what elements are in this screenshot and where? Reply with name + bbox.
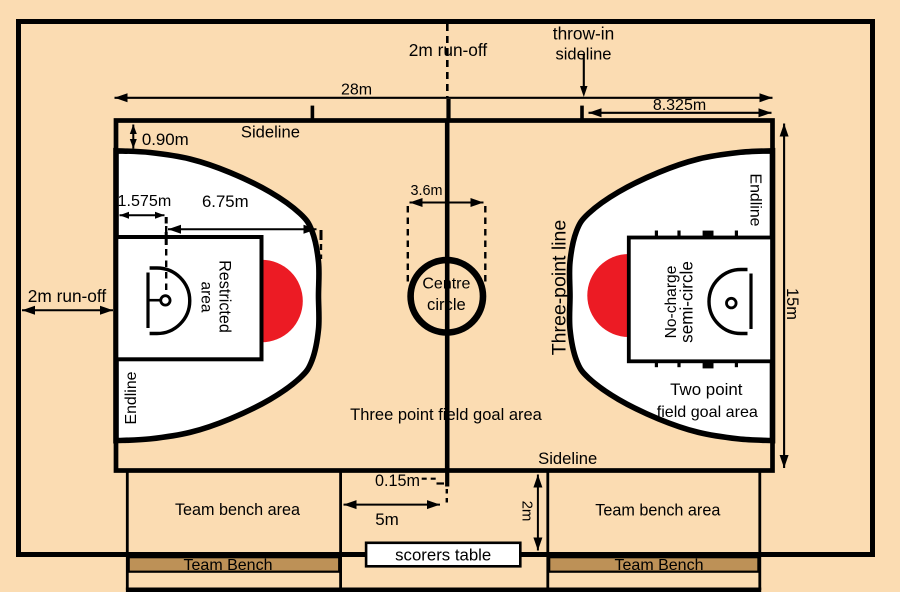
svg-text:area: area xyxy=(198,281,215,312)
svg-text:Sideline: Sideline xyxy=(241,123,300,142)
svg-text:field goal area: field goal area xyxy=(657,403,758,421)
svg-text:Endline: Endline xyxy=(123,371,140,424)
svg-text:scorers table: scorers table xyxy=(395,546,491,565)
svg-text:Two point: Two point xyxy=(670,380,743,399)
svg-text:0.15m: 0.15m xyxy=(375,472,420,490)
svg-text:6.75m: 6.75m xyxy=(202,192,249,211)
svg-text:3.6m: 3.6m xyxy=(411,183,443,199)
svg-text:Team bench area: Team bench area xyxy=(175,501,300,519)
svg-text:Centre: Centre xyxy=(422,276,470,293)
svg-text:Team Bench: Team Bench xyxy=(615,557,704,574)
svg-text:8.325m: 8.325m xyxy=(653,97,706,114)
svg-text:2m: 2m xyxy=(519,501,536,522)
svg-text:2m run-off: 2m run-off xyxy=(28,286,107,306)
svg-text:circle: circle xyxy=(427,295,466,314)
svg-text:Endline: Endline xyxy=(747,173,764,226)
svg-text:2m run-off: 2m run-off xyxy=(409,40,488,60)
svg-text:throw-in: throw-in xyxy=(553,24,614,44)
svg-text:5m: 5m xyxy=(375,510,399,529)
svg-text:Team bench area: Team bench area xyxy=(595,502,720,520)
svg-text:Team Bench: Team Bench xyxy=(184,557,273,574)
svg-text:Three point field goal area: Three point field goal area xyxy=(350,406,543,424)
svg-text:Sideline: Sideline xyxy=(538,449,597,468)
svg-text:15m: 15m xyxy=(783,288,801,320)
svg-text:Restricted: Restricted xyxy=(216,260,234,333)
svg-text:Three-point line: Three-point line xyxy=(549,220,571,356)
svg-text:1.575m: 1.575m xyxy=(118,192,172,210)
svg-text:0.90m: 0.90m xyxy=(142,130,189,149)
svg-text:28m: 28m xyxy=(341,81,372,98)
svg-text:semi-circle: semi-circle xyxy=(678,261,697,343)
